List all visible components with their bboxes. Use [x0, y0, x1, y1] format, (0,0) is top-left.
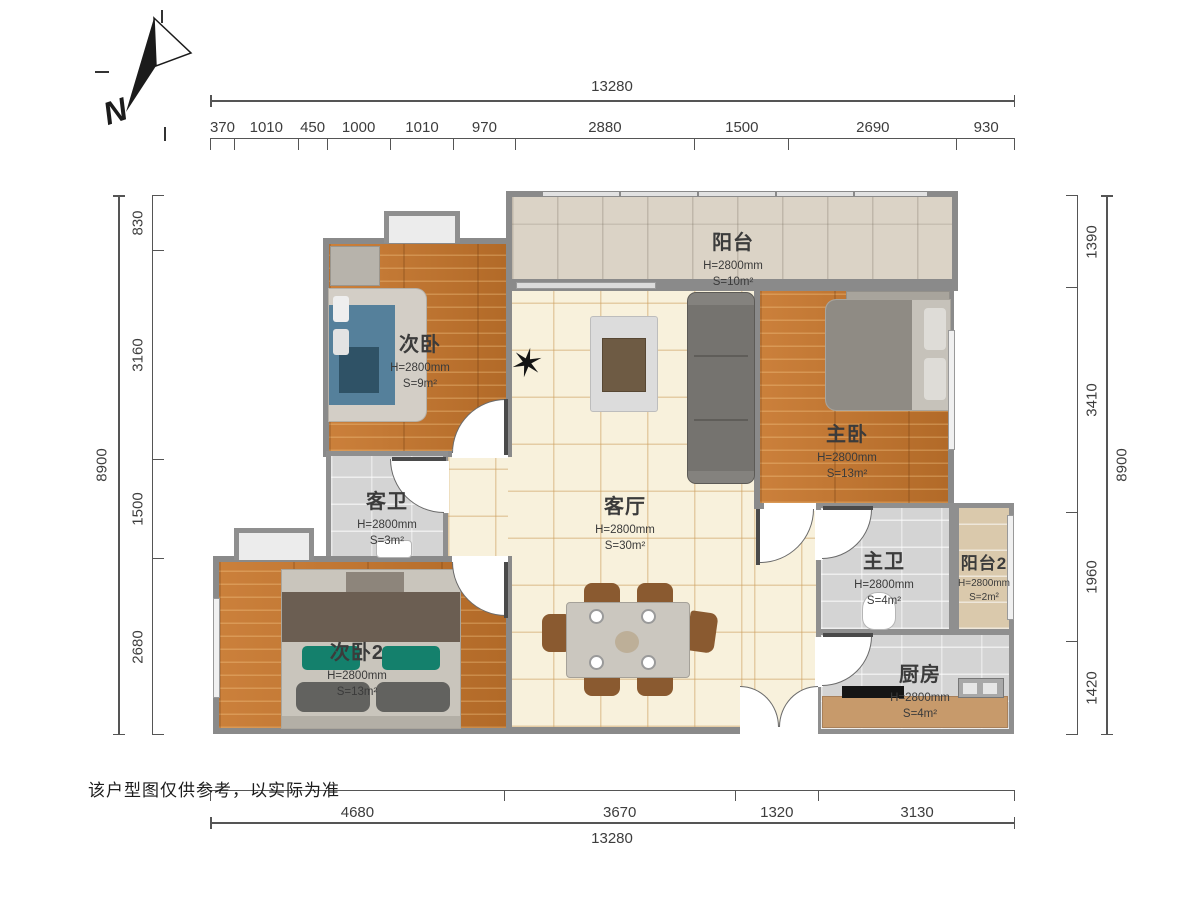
dimension-segment: 2690 — [788, 139, 956, 150]
sliding-glass-door — [516, 282, 656, 289]
plate-icon — [641, 655, 656, 670]
bed-pillow — [924, 358, 946, 400]
guest-bath-label: 客卫 H=2800mm S=3m² — [357, 485, 417, 549]
guest-bath-door-leaf — [392, 457, 446, 461]
dimension-value: 1500 — [725, 119, 758, 136]
dimension-value: 3410 — [1084, 383, 1101, 416]
sofa-armrest — [688, 293, 754, 305]
room-area: S=9m² — [390, 376, 450, 392]
dimension-value: 970 — [472, 119, 497, 136]
dimension-value: 2680 — [130, 630, 147, 663]
room-height: H=2800mm — [327, 668, 387, 684]
room-height: H=2800mm — [958, 577, 1010, 591]
north-arrow-icon: N — [90, 8, 205, 143]
plate-icon — [589, 655, 604, 670]
room-height: H=2800mm — [817, 450, 877, 466]
dimension-segment: 2680 — [153, 558, 164, 735]
room-area: S=4m² — [854, 593, 914, 609]
disclaimer-text: 该户型图仅供参考，以实际为准 — [88, 776, 340, 801]
living-label: 客厅 H=2800mm S=30m² — [595, 490, 655, 554]
floor-plan: N — [0, 0, 1200, 900]
bay-window-bedroom3 — [234, 528, 314, 560]
sofa-cushion-line — [694, 355, 748, 357]
dimension-value: 1960 — [1084, 560, 1101, 593]
bedroom3-label: 次卧2 H=2800mm S=13m² — [327, 636, 387, 700]
dimension-segment: 1010 — [234, 139, 298, 150]
dining-table-icon — [566, 602, 690, 678]
master-bath-door-leaf — [823, 506, 873, 510]
right-dim-total-line — [1106, 195, 1108, 735]
svg-text:N: N — [99, 90, 133, 132]
kitchen-sink-icon — [958, 678, 1004, 698]
dimension-value: 3160 — [130, 338, 147, 371]
room-name: 厨房 — [890, 658, 950, 687]
room-name: 客厅 — [595, 490, 655, 519]
room-area: S=13m² — [817, 466, 877, 482]
kitchen-label: 厨房 H=2800mm S=4m² — [890, 658, 950, 722]
dimension-value: 3130 — [900, 804, 933, 821]
dining-chair — [542, 614, 568, 652]
bed-footboard — [282, 716, 460, 728]
dimension-segment: 370 — [210, 139, 234, 150]
tv-console-icon — [602, 338, 646, 392]
bed-blanket — [282, 592, 460, 642]
master-door-leaf — [756, 509, 760, 565]
room-area: S=10m² — [703, 274, 763, 290]
bedroom2-label: 次卧 H=2800mm S=9m² — [390, 328, 450, 392]
dimension-value: 1010 — [405, 119, 438, 136]
room-name: 次卧2 — [327, 636, 387, 665]
room-area: S=4m² — [890, 706, 950, 722]
dimension-segment: 2880 — [515, 139, 695, 150]
dimension-segment: 1390 — [1066, 195, 1077, 287]
dimension-segment: 3160 — [153, 250, 164, 458]
dimension-segment: 970 — [453, 139, 514, 150]
dimension-value: 1500 — [130, 492, 147, 525]
plate-icon — [589, 609, 604, 624]
dimension-segment: 3130 — [818, 791, 1015, 801]
dimension-value: 1000 — [342, 119, 375, 136]
dimension-value: 4680 — [341, 804, 374, 821]
dimension-segment: 450 — [298, 139, 327, 150]
dimension-value: 450 — [300, 119, 325, 136]
sofa-armrest — [688, 471, 754, 483]
sofa-icon — [688, 293, 754, 483]
left-dim-total-label: 8900 — [94, 448, 111, 481]
room-height: H=2800mm — [890, 690, 950, 706]
kitchen-door-leaf — [823, 633, 873, 637]
hallway-floor — [448, 453, 508, 564]
dimension-value: 2690 — [856, 119, 889, 136]
dimension-value: 1420 — [1084, 672, 1101, 705]
dimension-value: 1320 — [760, 804, 793, 821]
bed-pillow-green — [382, 646, 440, 670]
dimension-value: 930 — [974, 119, 999, 136]
dimension-value: 3670 — [603, 804, 636, 821]
dimension-value: 1390 — [1084, 225, 1101, 258]
dimension-segment: 1010 — [390, 139, 454, 150]
dimension-segment: 930 — [956, 139, 1015, 150]
bay-window-bedroom2 — [384, 211, 460, 243]
dimension-segment: 1000 — [327, 139, 390, 150]
bed-pillow — [333, 296, 349, 322]
bedroom2-door-leaf — [504, 399, 508, 455]
sofa-cushion-line — [694, 419, 748, 421]
room-name: 客卫 — [357, 485, 417, 514]
right-dim-total-label: 8900 — [1114, 448, 1131, 481]
bedroom3-door-leaf — [504, 562, 508, 618]
wardrobe-icon — [330, 246, 380, 286]
room-height: H=2800mm — [357, 517, 417, 533]
right-dim-segments: 1390341019601420 — [1066, 195, 1078, 735]
bedroom3-window — [213, 598, 220, 698]
top-dim-total-label: 13280 — [591, 78, 633, 95]
balcony2-label: 阳台2 H=2800mm S=2m² — [958, 549, 1010, 605]
room-area: S=3m² — [357, 533, 417, 549]
bed-blanket — [826, 300, 912, 410]
bed-pillow — [333, 329, 349, 355]
centerpiece — [615, 631, 639, 653]
dimension-segment: 1960 — [1066, 512, 1077, 641]
room-area: S=2m² — [958, 591, 1010, 605]
bottom-dim-total-label: 13280 — [591, 830, 633, 847]
room-name: 阳台 — [703, 226, 763, 255]
room-height: H=2800mm — [854, 577, 914, 593]
dimension-segment: 3670 — [504, 791, 735, 801]
room-height: H=2800mm — [703, 258, 763, 274]
dimension-segment: 3410 — [1066, 287, 1077, 511]
room-area: S=30m² — [595, 538, 655, 554]
room-height: H=2800mm — [595, 522, 655, 538]
room-height: H=2800mm — [390, 360, 450, 376]
master-label: 主卧 H=2800mm S=13m² — [817, 418, 877, 482]
room-name: 次卧 — [390, 328, 450, 357]
top-dim-segments: 370101045010001010970288015002690930 — [210, 138, 1015, 150]
top-dim-total-line — [210, 100, 1015, 102]
dimension-segment: 1500 — [153, 459, 164, 558]
master-window — [948, 330, 955, 450]
dimension-value: 2880 — [588, 119, 621, 136]
dimension-segment: 1500 — [694, 139, 788, 150]
bed-pillow — [924, 308, 946, 350]
dining-chair — [685, 610, 718, 654]
sink-basin — [963, 683, 977, 694]
bed-pillow — [376, 682, 450, 712]
dimension-value: 370 — [210, 119, 235, 136]
room-name: 主卧 — [817, 418, 877, 447]
bed-icon — [826, 300, 950, 410]
room-name: 阳台2 — [958, 549, 1010, 574]
left-dim-segments: 830316015002680 — [152, 195, 164, 735]
sink-basin — [983, 683, 997, 694]
dimension-segment: 1320 — [735, 791, 819, 801]
balcony-label: 阳台 H=2800mm S=10m² — [703, 226, 763, 290]
room-name: 主卫 — [854, 545, 914, 574]
bottom-dim-total-line — [210, 822, 1015, 824]
balcony-top-window — [540, 191, 928, 197]
dimension-segment: 1420 — [1066, 641, 1077, 735]
dimension-value: 830 — [130, 211, 147, 236]
left-dim-total-line — [118, 195, 120, 735]
dimension-segment: 830 — [153, 195, 164, 250]
dimension-value: 1010 — [250, 119, 283, 136]
master-bath-label: 主卫 H=2800mm S=4m² — [854, 545, 914, 609]
plate-icon — [641, 609, 656, 624]
room-area: S=13m² — [327, 684, 387, 700]
